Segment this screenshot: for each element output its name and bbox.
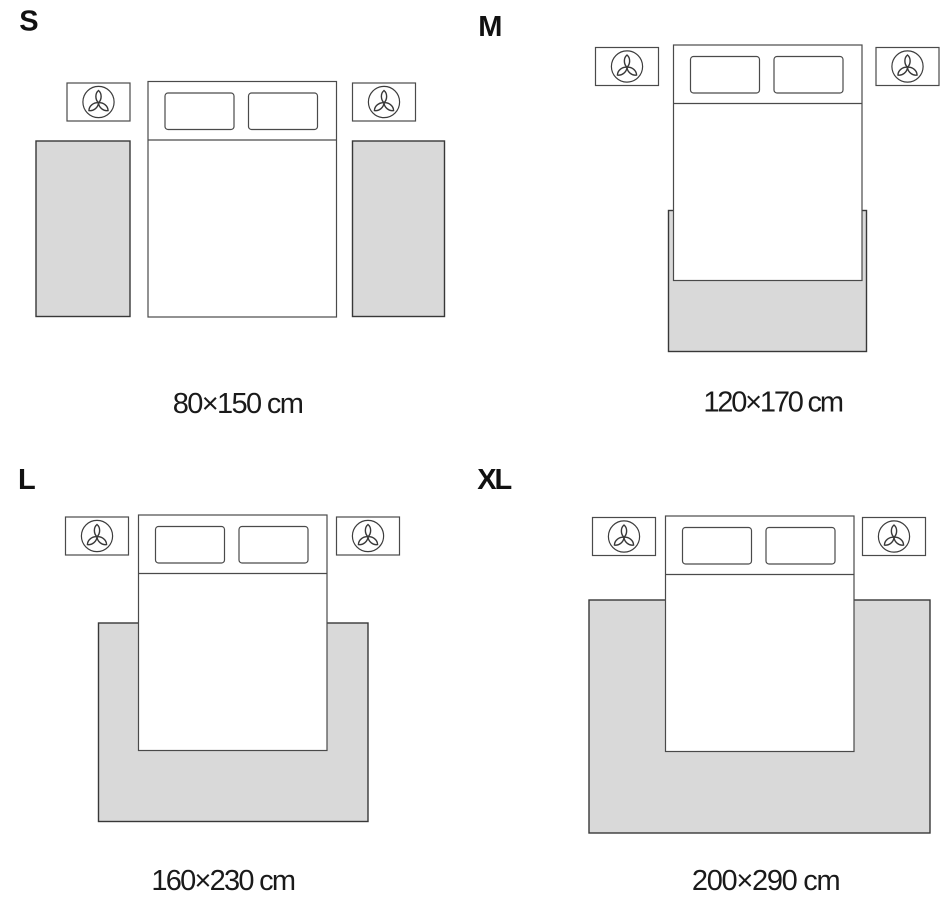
svg-text:L: L <box>18 464 36 496</box>
svg-text:200×290 cm: 200×290 cm <box>692 865 840 897</box>
svg-text:S: S <box>19 6 38 38</box>
svg-text:M: M <box>478 11 502 43</box>
svg-text:80×150 cm: 80×150 cm <box>173 388 303 420</box>
svg-text:120×170 cm: 120×170 cm <box>703 387 842 419</box>
svg-text:160×230 cm: 160×230 cm <box>151 865 295 897</box>
svg-text:XL: XL <box>477 464 511 496</box>
